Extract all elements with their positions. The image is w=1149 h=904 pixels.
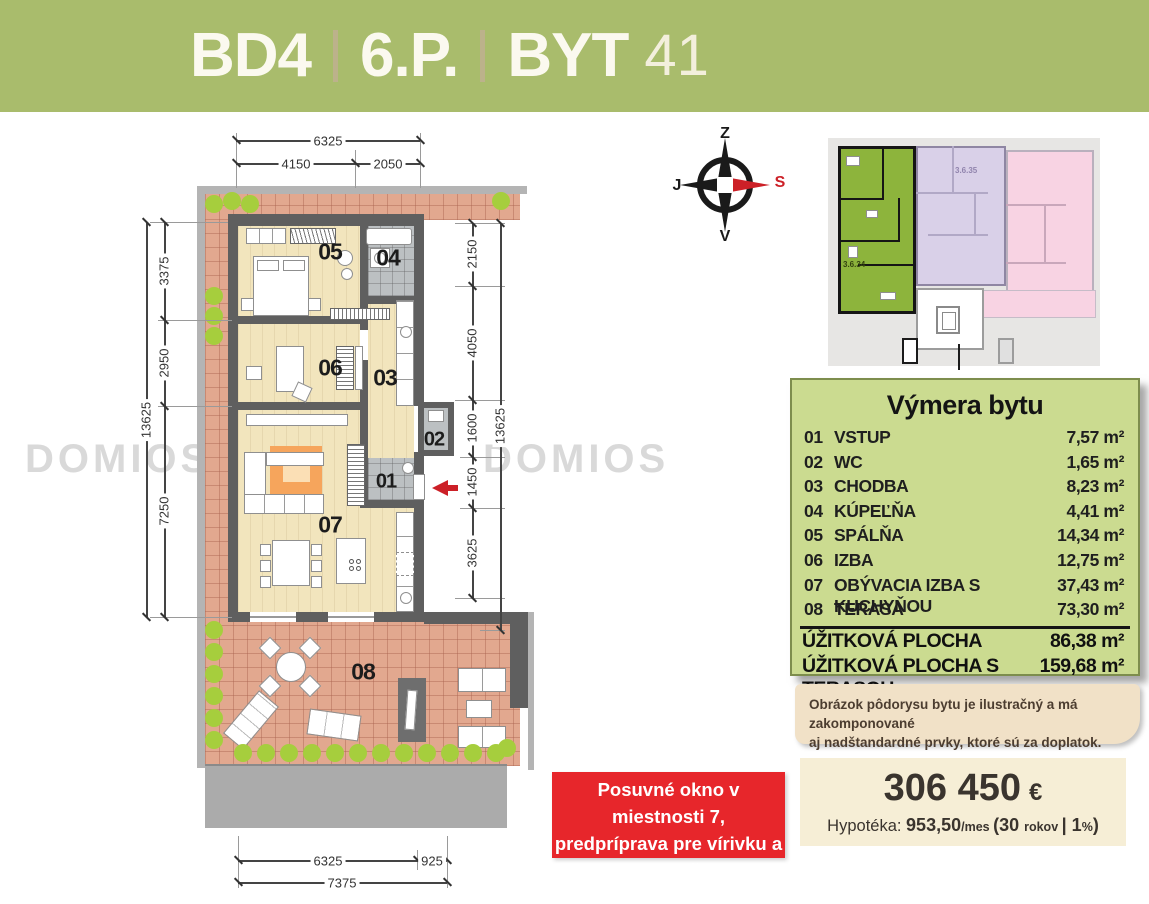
unit-label: BYT bbox=[507, 25, 628, 87]
room-area: 14,34 m² bbox=[1057, 525, 1124, 546]
bush bbox=[205, 731, 223, 749]
room-name: CHODBA bbox=[834, 476, 1066, 497]
mortgage-years-word: rokov bbox=[1024, 820, 1062, 834]
dim-right-b: 4050 bbox=[465, 326, 480, 361]
room-area: 73,30 m² bbox=[1057, 599, 1124, 620]
room-number: 01 bbox=[804, 427, 834, 448]
dim-guide bbox=[158, 320, 232, 321]
room-name: TERASA bbox=[834, 599, 1057, 620]
total-value: 86,38 m² bbox=[1050, 630, 1124, 653]
table-divider bbox=[800, 626, 1130, 629]
dim-bottom-total: 7375 bbox=[325, 876, 360, 891]
sofa bbox=[244, 494, 324, 514]
room-label-05: 05 bbox=[318, 239, 342, 266]
cooktop-burner bbox=[356, 566, 361, 571]
total-value: 159,68 m² bbox=[1040, 655, 1124, 678]
bush bbox=[205, 687, 223, 705]
note-line: predpríprava pre vírivku a vonkajší bbox=[552, 830, 785, 884]
cooktop-burner bbox=[349, 559, 354, 564]
mortgage-row: Hypotéka: 953,50/mes (30 rokov | 1%) bbox=[800, 815, 1126, 836]
site-plan-detail bbox=[998, 338, 1014, 364]
outdoor-table bbox=[466, 700, 492, 718]
bush bbox=[395, 744, 413, 762]
mortgage-close: ) bbox=[1093, 815, 1099, 835]
cooktop-burner bbox=[349, 566, 354, 571]
entry-wardrobe bbox=[347, 444, 365, 506]
table-row: 07 OBÝVACIA IZBA S KUCHYŇOU 37,43 m² bbox=[792, 575, 1138, 600]
pillow bbox=[283, 260, 305, 271]
project-code: BD4 bbox=[190, 25, 311, 87]
room-area: 1,65 m² bbox=[1066, 452, 1124, 473]
chair bbox=[260, 544, 271, 556]
dim-left-c: 7250 bbox=[157, 494, 172, 529]
dim-top-a: 4150 bbox=[279, 157, 314, 172]
toilet bbox=[428, 410, 444, 422]
dim-left-b: 2950 bbox=[157, 346, 172, 381]
dim-right-c: 1600 bbox=[465, 411, 480, 446]
bush bbox=[257, 744, 275, 762]
room-label-02: 02 bbox=[424, 429, 444, 452]
dim-guide bbox=[455, 223, 505, 224]
room-name: SPÁLŇA bbox=[834, 525, 1057, 546]
compass-north-label: S bbox=[775, 174, 786, 192]
door-sill bbox=[250, 616, 296, 618]
area-table-title: Výmera bytu bbox=[792, 390, 1138, 421]
table-row: 01 VSTUP 7,57 m² bbox=[792, 427, 1138, 452]
site-plan-wall bbox=[952, 146, 954, 192]
site-plan-wall bbox=[858, 264, 916, 266]
table-total-row: ÚŽITKOVÁ PLOCHA S TERASOU 159,68 m² bbox=[792, 655, 1138, 681]
site-plan-wall bbox=[1044, 204, 1046, 262]
mortgage-monthly: 953,50 bbox=[906, 815, 961, 835]
dim-guide bbox=[460, 508, 505, 509]
site-plan-detail bbox=[902, 338, 918, 364]
site-plan-wall bbox=[898, 198, 900, 242]
site-plan-furniture bbox=[866, 210, 878, 218]
oven bbox=[400, 592, 412, 604]
site-plan-wall bbox=[974, 192, 976, 236]
bush bbox=[464, 744, 482, 762]
room-area: 8,23 m² bbox=[1066, 476, 1124, 497]
bush bbox=[205, 709, 223, 727]
site-plan-wall bbox=[1006, 204, 1066, 206]
wall bbox=[414, 214, 424, 406]
mortgage-rate: | 1 bbox=[1062, 815, 1082, 835]
feature-note-box: Posuvné okno v miestnosti 7, predpríprav… bbox=[552, 772, 785, 858]
dim-top-total: 6325 bbox=[311, 134, 346, 149]
bush bbox=[280, 744, 298, 762]
wall bbox=[228, 214, 424, 226]
disclaimer-line: Obrázok pôdorysu bytu je ilustračný a má… bbox=[809, 695, 1126, 733]
door-sill bbox=[328, 616, 374, 618]
dim-right-d: 1450 bbox=[465, 465, 480, 500]
dining-table bbox=[272, 540, 310, 586]
mortgage-years: (30 bbox=[993, 815, 1024, 835]
site-plan-wall bbox=[882, 146, 884, 200]
note-line: guľový ventil v cene bytu bbox=[552, 884, 785, 904]
dim-right-total: 13625 bbox=[493, 405, 508, 447]
room-area: 4,41 m² bbox=[1066, 501, 1124, 522]
entry-door bbox=[413, 474, 425, 500]
mortgage-percent: % bbox=[1082, 820, 1093, 834]
wall bbox=[368, 500, 414, 508]
floor-code: 6.P. bbox=[360, 25, 458, 87]
site-plan-wall bbox=[928, 234, 988, 236]
shelf bbox=[330, 308, 390, 320]
room-number: 02 bbox=[804, 452, 834, 473]
site-plan-unit-highlighted bbox=[838, 146, 916, 314]
table-row: 08 TERASA 73,30 m² bbox=[792, 599, 1138, 624]
header-separator bbox=[333, 30, 338, 82]
entrance-arrow-icon bbox=[432, 480, 448, 496]
wall bbox=[414, 500, 424, 622]
dim-right-e: 3625 bbox=[465, 536, 480, 571]
chair bbox=[260, 560, 271, 572]
watermark: DOMIOS bbox=[25, 437, 211, 482]
light-fixture bbox=[402, 462, 414, 474]
wall bbox=[510, 612, 528, 708]
compass-east-label: V bbox=[720, 228, 731, 246]
room-name: WC bbox=[834, 452, 1066, 473]
site-plan-wall bbox=[838, 198, 884, 200]
dim-left-total: 13625 bbox=[139, 399, 154, 441]
dim-guide bbox=[150, 222, 228, 223]
bush bbox=[418, 744, 436, 762]
room-number: 03 bbox=[804, 476, 834, 497]
note-line: Posuvné okno v miestnosti 7, bbox=[552, 776, 785, 830]
disclaimer-line: aj nadštandardné prvky, ktoré sú za dopl… bbox=[809, 733, 1126, 752]
bush bbox=[372, 744, 390, 762]
dim-bottom-b: 925 bbox=[418, 854, 446, 869]
table-row: 05 SPÁLŇA 14,34 m² bbox=[792, 525, 1138, 550]
site-plan-furniture bbox=[848, 246, 858, 258]
entrance-arrow-tail bbox=[448, 485, 458, 491]
chair bbox=[311, 560, 322, 572]
table-row: 02 WC 1,65 m² bbox=[792, 452, 1138, 477]
bush bbox=[492, 192, 510, 210]
room-number: 06 bbox=[804, 550, 834, 571]
bush bbox=[205, 307, 223, 325]
compass-west-label: Z bbox=[720, 125, 730, 143]
dim-top-b: 2050 bbox=[371, 157, 406, 172]
room-label-04: 04 bbox=[376, 245, 400, 272]
compass-rose-icon bbox=[672, 132, 778, 238]
bush bbox=[349, 744, 367, 762]
table-row: 03 CHODBA 8,23 m² bbox=[792, 476, 1138, 501]
site-plan-furniture bbox=[846, 156, 860, 166]
dim-guide bbox=[455, 598, 505, 599]
dim-guide bbox=[355, 150, 356, 188]
room-label-01: 01 bbox=[376, 471, 396, 494]
bush bbox=[241, 195, 259, 213]
currency-symbol: € bbox=[1029, 779, 1042, 806]
room-area: 7,57 m² bbox=[1066, 427, 1124, 448]
bush bbox=[205, 665, 223, 683]
outdoor-sofa bbox=[458, 668, 506, 692]
watermark: DOMIOS bbox=[483, 437, 669, 482]
page: BD4 6.P. BYT 41 DOMIOS DOMIOS bbox=[0, 0, 1149, 904]
wall bbox=[228, 214, 238, 622]
room-name: VSTUP bbox=[834, 427, 1066, 448]
sofa bbox=[266, 452, 324, 466]
room-number: 07 bbox=[804, 575, 834, 596]
mortgage-label: Hypotéka: bbox=[827, 817, 906, 835]
bush bbox=[303, 744, 321, 762]
dim-left-a: 3375 bbox=[157, 254, 172, 289]
dim-guide bbox=[158, 406, 232, 407]
site-plan-label-neighbor: 3.6.35 bbox=[955, 166, 977, 175]
room-number: 04 bbox=[804, 501, 834, 522]
sink bbox=[400, 326, 412, 338]
room-label-03: 03 bbox=[373, 365, 397, 392]
cooktop-burner bbox=[356, 559, 361, 564]
bush bbox=[234, 744, 252, 762]
room-label-08: 08 bbox=[351, 659, 375, 686]
chair bbox=[311, 576, 322, 588]
header-separator bbox=[480, 30, 485, 82]
total-name: ÚŽITKOVÁ PLOCHA bbox=[802, 630, 1050, 653]
roof-slab bbox=[205, 766, 507, 828]
room-number: 08 bbox=[804, 599, 834, 620]
room-number: 05 bbox=[804, 525, 834, 546]
bush bbox=[223, 192, 241, 210]
wardrobe bbox=[246, 228, 286, 244]
price-amount: 306 450 bbox=[884, 767, 1021, 809]
room-name: IZBA bbox=[834, 550, 1057, 571]
wall bbox=[424, 612, 512, 624]
site-plan-furniture bbox=[880, 292, 896, 300]
chair bbox=[260, 576, 271, 588]
dim-right-a: 2150 bbox=[465, 237, 480, 272]
site-plan-wall bbox=[838, 240, 900, 242]
chair bbox=[341, 268, 353, 280]
nightstand bbox=[308, 298, 321, 311]
room-label-07: 07 bbox=[318, 512, 342, 539]
site-plan-wall bbox=[916, 192, 988, 194]
side-table bbox=[246, 366, 262, 380]
bathtub bbox=[366, 228, 412, 245]
mortgage-per: /mes bbox=[961, 820, 993, 834]
site-plan-wall bbox=[1006, 262, 1066, 264]
pillow bbox=[257, 260, 279, 271]
nightstand bbox=[241, 298, 254, 311]
bush bbox=[498, 739, 516, 757]
dim-guide bbox=[455, 286, 505, 287]
header-band: BD4 6.P. BYT 41 bbox=[0, 0, 1149, 112]
table-row: 06 IZBA 12,75 m² bbox=[792, 550, 1138, 575]
fridge bbox=[396, 552, 414, 576]
disclaimer-box: Obrázok pôdorysu bytu je ilustračný a má… bbox=[795, 684, 1140, 744]
bush bbox=[205, 287, 223, 305]
room-name: KÚPEĽŇA bbox=[834, 501, 1066, 522]
site-plan-detail bbox=[958, 344, 960, 370]
bush bbox=[205, 621, 223, 639]
railing bbox=[197, 186, 205, 768]
room-area: 12,75 m² bbox=[1057, 550, 1124, 571]
sofa bbox=[355, 346, 363, 390]
kitchen-cabinets bbox=[396, 300, 414, 406]
bush bbox=[326, 744, 344, 762]
railing bbox=[197, 186, 527, 194]
dim-guide bbox=[455, 400, 505, 401]
chair bbox=[311, 544, 322, 556]
room-area: 37,43 m² bbox=[1057, 575, 1124, 596]
site-plan-elevator-cab bbox=[942, 312, 956, 330]
price-amount-row: 306 450€ bbox=[800, 768, 1126, 813]
compass-south-label: J bbox=[673, 177, 682, 195]
table-total-row: ÚŽITKOVÁ PLOCHA 86,38 m² bbox=[792, 630, 1138, 656]
bush bbox=[441, 744, 459, 762]
railing bbox=[528, 612, 534, 770]
bench bbox=[246, 414, 348, 426]
wall bbox=[238, 402, 364, 410]
unit-number: 41 bbox=[644, 27, 709, 85]
bush bbox=[205, 327, 223, 345]
terrace-table bbox=[276, 652, 306, 682]
table-row: 04 KÚPEĽŇA 4,41 m² bbox=[792, 501, 1138, 526]
site-plan-label-highlighted: 3.6.34 bbox=[843, 260, 865, 269]
dim-guide bbox=[460, 457, 505, 458]
price-box: 306 450€ Hypotéka: 953,50/mes (30 rokov … bbox=[800, 758, 1126, 846]
bush bbox=[205, 195, 223, 213]
bush bbox=[205, 643, 223, 661]
area-table-panel: Výmera bytu 01 VSTUP 7,57 m² 02 WC 1,65 … bbox=[790, 378, 1140, 676]
dim-bottom-a: 6325 bbox=[311, 854, 346, 869]
room-label-06: 06 bbox=[318, 355, 342, 382]
